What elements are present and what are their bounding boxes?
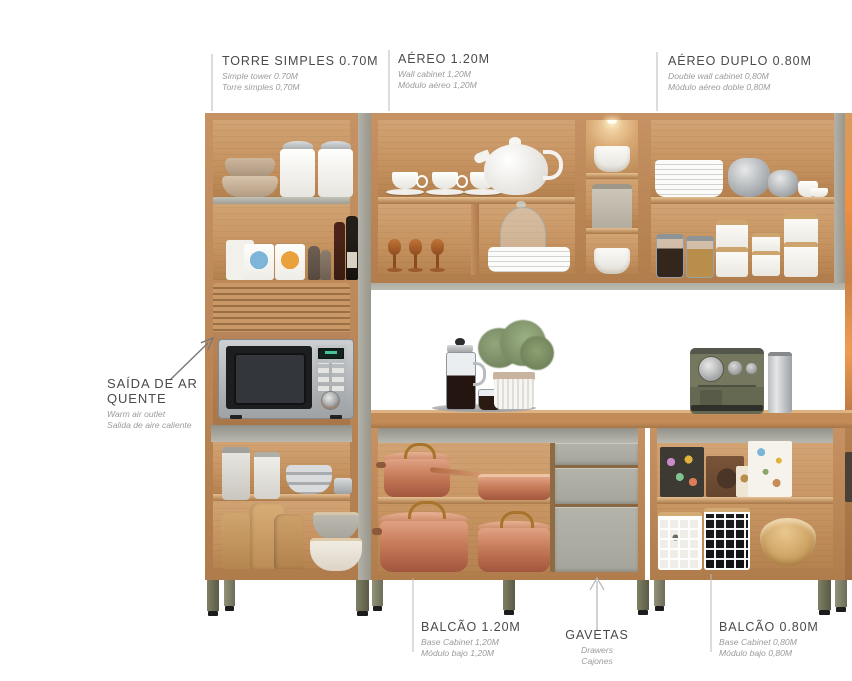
plant-pot xyxy=(494,379,534,409)
coffee-canister xyxy=(280,149,315,197)
label-title: SAÍDA DE AR QUENTE xyxy=(107,377,225,406)
stacked-bowls xyxy=(225,158,275,178)
cabinet-leg xyxy=(207,580,219,611)
pasta-canister xyxy=(318,149,353,197)
pepper-grinder xyxy=(308,246,320,280)
label-subtitle-es: Módulo aéreo doble 0,80M xyxy=(668,82,812,93)
metal-canister xyxy=(768,352,792,413)
wall-cabinet-duplo-shelf xyxy=(651,197,834,204)
saucer xyxy=(426,189,464,195)
white-canister-wood-lid xyxy=(716,247,748,277)
french-press-handle xyxy=(473,362,486,386)
french-press xyxy=(446,352,476,410)
niche-underside xyxy=(580,283,644,290)
wire-basket-coffee-bag xyxy=(704,508,750,570)
product-diagram-kitchen-set: TORRE SIMPLES 0.70M Simple tower 0.70M T… xyxy=(0,0,852,681)
copper-stockpot xyxy=(380,521,468,572)
wall-cabinet-duplo-underside xyxy=(644,283,845,290)
copper-pan xyxy=(478,474,552,500)
label-subtitle-en: Base Cabinet 0,80M xyxy=(719,637,819,648)
niche-bowl xyxy=(594,248,630,274)
wine-glass-stem xyxy=(436,255,439,268)
espresso-machine-base xyxy=(691,405,763,411)
cabinet-leg xyxy=(637,580,649,610)
tall-canister xyxy=(222,447,250,500)
label-title: GAVETAS xyxy=(553,628,641,642)
warm-air-vent-panel xyxy=(213,283,350,332)
wall-cabinet-duplo-side-panel xyxy=(834,113,845,290)
cereal-box-white xyxy=(748,441,792,497)
label-gavetas: GAVETAS Drawers Cajones xyxy=(553,628,641,667)
copper-pot xyxy=(478,528,550,572)
label-subtitle-en: Simple tower 0.70M xyxy=(222,71,379,82)
tea-box-orange xyxy=(275,244,305,280)
label-balcao-080: BALCÃO 0.80M Base Cabinet 0,80M Módulo b… xyxy=(719,620,819,659)
small-cup xyxy=(810,188,828,197)
wine-glass-base xyxy=(408,268,423,272)
label-aereo-120: AÉREO 1.20M Wall cabinet 1,20M Módulo aé… xyxy=(398,52,490,91)
label-subtitle-es: Módulo bajo 0,80M xyxy=(719,648,819,659)
white-canister-wood-lid xyxy=(784,242,818,277)
label-subtitle-es: Torre simples 0,70M xyxy=(222,82,379,93)
microwave-foot xyxy=(230,415,242,419)
small-tins xyxy=(334,478,352,494)
label-torre-simples: TORRE SIMPLES 0.70M Simple tower 0.70M T… xyxy=(222,54,379,93)
cereal-box-dark xyxy=(660,447,704,497)
plate-stack xyxy=(655,160,723,197)
niche-canister xyxy=(592,184,632,233)
label-title: BALCÃO 0.80M xyxy=(719,620,819,634)
plant-foliage xyxy=(520,336,554,370)
microwave-window xyxy=(234,353,306,405)
plate-stack xyxy=(488,247,570,272)
stacked-bowls xyxy=(222,176,278,197)
tower-gray-rail xyxy=(211,425,352,442)
adjacent-module-edge xyxy=(845,428,852,580)
metal-bowl-stack xyxy=(286,465,332,494)
cabinet-leg xyxy=(356,580,369,611)
drawer-middle xyxy=(555,468,638,504)
microwave-foot xyxy=(330,415,342,419)
arrow-up-icon xyxy=(590,578,604,630)
copper-pot xyxy=(384,459,450,497)
wine-glass-base xyxy=(430,268,445,272)
label-aereo-duplo: AÉREO DUPLO 0.80M Double wall cabinet 0,… xyxy=(668,54,812,93)
espresso-machine-dial-small xyxy=(728,361,742,375)
drawer-top xyxy=(555,443,638,465)
teapot xyxy=(484,144,548,195)
teacup-handle xyxy=(456,175,468,188)
teacup-handle xyxy=(416,175,428,188)
tea-box-blue xyxy=(244,244,274,280)
wine-glass-base xyxy=(387,268,402,272)
paper-bag xyxy=(274,514,304,569)
microwave-button-gap xyxy=(329,363,332,391)
label-subtitle-en: Base Cabinet 1,20M xyxy=(421,637,521,648)
niche-bowl xyxy=(594,146,630,172)
label-subtitle-es: Módulo aéreo 1,20M xyxy=(398,80,490,91)
label-balcao-120: BALCÃO 1.20M Base Cabinet 1,20M Módulo b… xyxy=(421,620,521,659)
base-cabinet-080-shelf xyxy=(657,497,833,504)
label-subtitle-es: Salida de aire caliente xyxy=(107,420,225,431)
espresso-machine-seam xyxy=(698,385,756,387)
label-saida-ar-quente: SAÍDA DE AR QUENTE Warm air outlet Salid… xyxy=(107,377,225,431)
wine-glass xyxy=(388,239,401,255)
wall-cabinet-120-divider xyxy=(471,204,479,275)
glass-jar-pasta xyxy=(686,236,714,278)
cabinet-leg xyxy=(372,580,383,606)
copper-pot-handle xyxy=(372,528,382,535)
salt-grinder xyxy=(320,250,331,280)
label-title: AÉREO 1.20M xyxy=(398,52,490,66)
wine-glass xyxy=(431,239,444,255)
microwave-dial xyxy=(322,392,339,409)
cabinet-leg xyxy=(654,580,665,606)
steel-bowl-small xyxy=(768,170,798,197)
saucer xyxy=(386,189,424,195)
wall-cabinet-120-shelf xyxy=(378,197,575,204)
adjacent-module-detail xyxy=(845,452,852,502)
cabinet-leg xyxy=(835,580,847,607)
label-subtitle-en: Warm air outlet xyxy=(107,409,225,420)
label-subtitle-en: Double wall cabinet 0,80M xyxy=(668,71,812,82)
label-title: BALCÃO 1.20M xyxy=(421,620,521,634)
drawer-bottom xyxy=(555,507,638,572)
paper-bag xyxy=(221,513,251,569)
steel-bowl-large xyxy=(728,158,770,197)
wall-cabinet-120-underside xyxy=(371,283,582,290)
white-canister-wood-lid xyxy=(752,251,780,276)
microwave-display-digits xyxy=(325,351,337,354)
cabinet-leg xyxy=(818,580,831,610)
cabinet-leg xyxy=(503,580,515,610)
label-subtitle-es: Módulo bajo 1,20M xyxy=(421,648,521,659)
glass-jar-beans xyxy=(656,234,684,278)
label-subtitle-en: Drawers xyxy=(553,645,641,656)
tower-shelf-divider-1 xyxy=(213,197,350,204)
copper-pot-lid-handle xyxy=(500,511,534,528)
espresso-machine-dial xyxy=(699,357,723,381)
wine-glass-stem xyxy=(414,255,417,268)
adjacent-lit-module xyxy=(845,113,852,410)
wine-glass-stem xyxy=(393,255,396,268)
oil-bottle xyxy=(334,222,345,280)
tall-canister xyxy=(254,452,280,499)
base-cabinet-120-rail xyxy=(378,428,638,443)
espresso-machine-dial-small xyxy=(746,363,757,374)
label-title: TORRE SIMPLES 0.70M xyxy=(222,54,379,68)
label-subtitle-es: Cajones xyxy=(553,656,641,667)
label-subtitle-en: Wall cabinet 1,20M xyxy=(398,69,490,80)
cabinet-leg xyxy=(224,580,235,606)
wine-glass xyxy=(409,239,422,255)
wire-basket-white-pack xyxy=(658,512,702,570)
gray-side-panel xyxy=(358,113,371,580)
label-title: AÉREO DUPLO 0.80M xyxy=(668,54,812,68)
copper-pot-handle xyxy=(376,462,386,468)
vinegar-bottle xyxy=(346,216,358,280)
bottle-label xyxy=(347,252,357,268)
french-press-lid xyxy=(447,345,473,352)
base-cabinet-080-rail xyxy=(657,428,833,443)
